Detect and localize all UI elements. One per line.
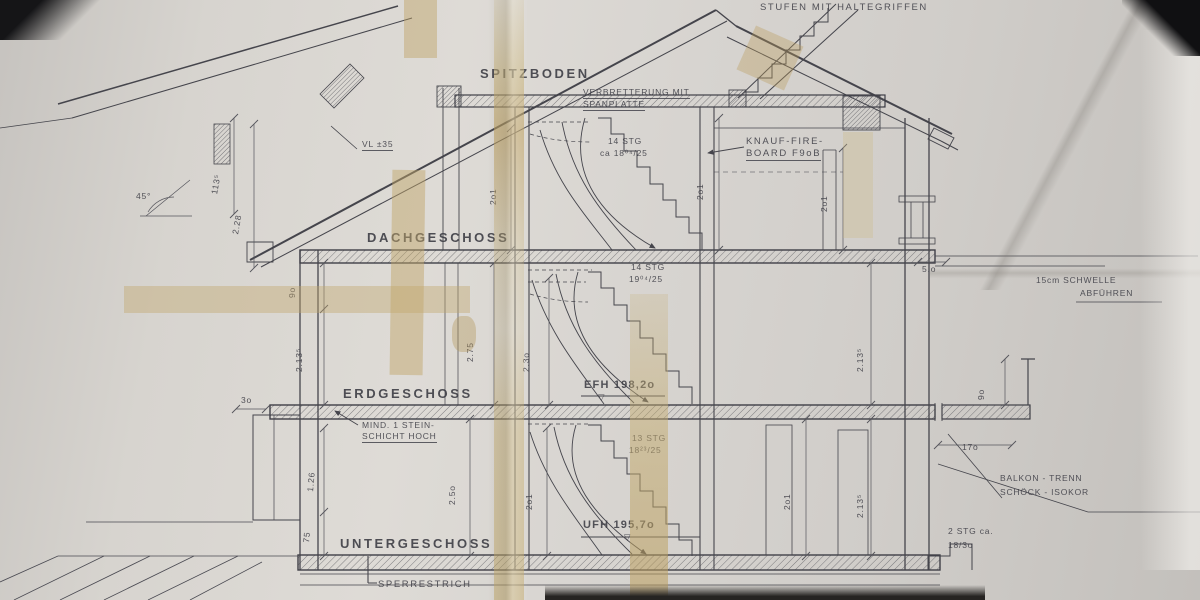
mind-label-1: MIND. 1 STEIN-: [362, 420, 435, 430]
knauf-label-2: BOARD F9oB: [746, 148, 821, 161]
ground-lines: [0, 522, 298, 600]
dim-201-b: 2o1: [695, 183, 705, 200]
leader-lines: [331, 126, 1200, 583]
stairs-mid-label-2: 19⁰⁴/25: [629, 274, 663, 285]
dim-75: 75: [301, 531, 312, 543]
dim-2135-left: 2.13⁵: [294, 348, 304, 372]
blueprint-photo: STUFEN MIT HALTEGRIFFEN SPITZBODEN VERBR…: [0, 0, 1200, 600]
slab-balkon: [942, 405, 1030, 419]
tape-strip-left-horizontal: [124, 286, 470, 313]
tape-strip-center: [494, 0, 524, 600]
dim-201-d: 2o1: [524, 493, 534, 510]
slab-untergeschoss: [298, 555, 940, 570]
stairs-top-label-2: ca 18⁰⁴/25: [600, 148, 648, 159]
stairs-top-label-1: 14 STG: [608, 136, 642, 146]
level-label-untergeschoss: UNTERGESCHOSS: [340, 536, 492, 551]
balkon-label-1: BALKON - TRENN: [1000, 473, 1082, 483]
dim-2135-right-low: 2.13⁵: [855, 494, 865, 518]
dim-2135-right-up: 2.13⁵: [855, 348, 865, 372]
tape-smudge: [452, 316, 476, 352]
schwelle-label-2: ABFÜHREN: [1080, 288, 1133, 298]
tape-strip-mid-vertical: [630, 294, 668, 600]
efh-level-marker: ▽: [598, 392, 605, 403]
dimension-lines: [140, 114, 1016, 560]
stufen-label: STUFEN MIT HALTEGRIFFEN: [760, 2, 928, 13]
verbretterung-label-1: VERBRETTERUNG MIT: [583, 87, 690, 99]
tape-strip-left-vertical: [390, 170, 426, 375]
slab-erdgeschoss: [270, 405, 935, 419]
vl-label: VL ±35: [362, 139, 393, 151]
dim-250: 2.5o: [447, 485, 457, 505]
verbretterung-label-2: SPANPLATTE: [583, 99, 645, 111]
knauf-label-1: KNAUF-FIRE-: [746, 136, 824, 147]
stairs-out-label-1: 2 STG ca.: [948, 526, 993, 536]
schwelle-label-1: 15cm SCHWELLE: [1036, 275, 1116, 285]
mind-label-2: SCHICHT HOCH: [362, 431, 437, 443]
level-label-erdgeschoss: ERDGESCHOSS: [343, 386, 473, 401]
level-label-dachgeschoss: DACHGESCHOSS: [367, 230, 509, 245]
dim-126: 1.26: [305, 471, 317, 492]
tape-strip-top: [404, 0, 437, 58]
stairs-mid-label-1: 14 STG: [631, 262, 665, 272]
balkon-label-2: SCHÖCK - ISOKOR: [1000, 487, 1089, 497]
stairs-out-label-2: 18/3o: [948, 540, 973, 550]
dim-50: 5.o: [922, 264, 936, 274]
dim-90-right: 9o: [976, 389, 986, 400]
stairs: [528, 4, 858, 556]
dim-170: 17o: [962, 442, 979, 452]
dim-30: 3o: [241, 395, 252, 405]
dim-201-e: 2o1: [782, 493, 792, 510]
dim-201-c: 2o1: [819, 195, 829, 212]
dim-angle: 45°: [136, 191, 151, 201]
sperrestrich-label: SPERRESTRICH: [378, 579, 472, 590]
tape-patch-right: [843, 132, 873, 238]
